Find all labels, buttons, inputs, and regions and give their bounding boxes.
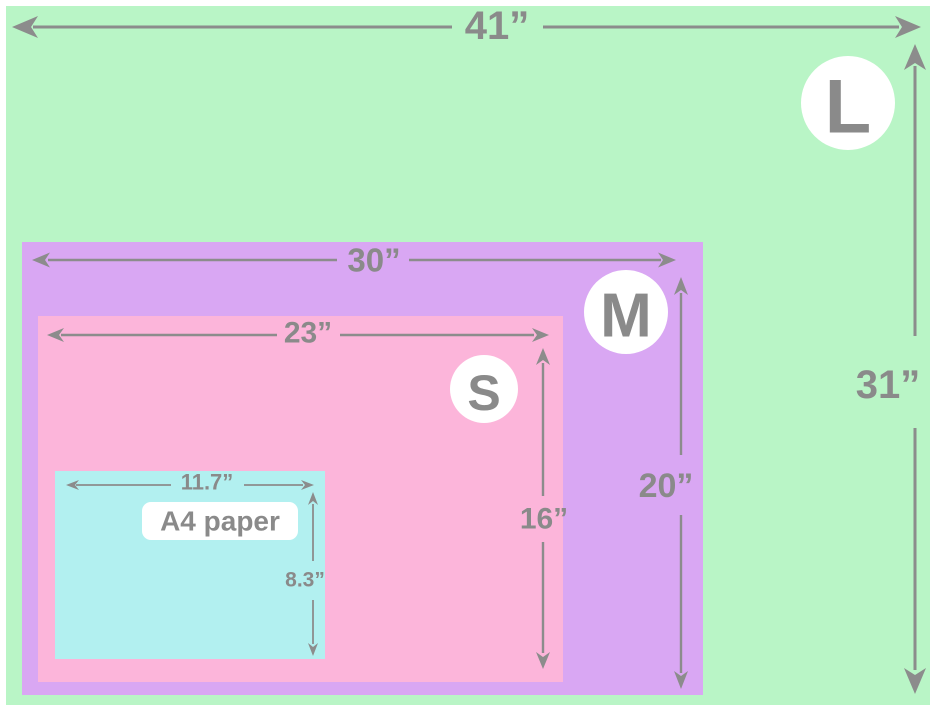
diagram-canvas: 41” 31” 30” 20” <box>0 0 938 712</box>
badge-l: L <box>801 56 895 150</box>
dim-label: 41” <box>465 4 530 48</box>
badge-s: S <box>450 355 518 423</box>
dim-label: 8.3” <box>285 569 325 592</box>
dim-label: 20” <box>639 467 694 505</box>
badge-l-letter: L <box>825 65 871 150</box>
dim-label: 30” <box>347 242 400 279</box>
dim-label: 31” <box>856 363 921 407</box>
a4-label: A4 paper <box>142 502 298 540</box>
badge-m: M <box>584 270 668 354</box>
badge-s-letter: S <box>467 365 500 421</box>
size-a4-rect <box>55 471 325 659</box>
badge-m-letter: M <box>600 282 652 351</box>
a4-label-text: A4 paper <box>160 506 280 537</box>
dim-label: 16” <box>520 503 568 536</box>
size-comparison-svg: 41” 31” 30” 20” <box>0 0 938 712</box>
dim-label: 11.7” <box>181 470 234 495</box>
dim-label: 23” <box>284 317 332 350</box>
